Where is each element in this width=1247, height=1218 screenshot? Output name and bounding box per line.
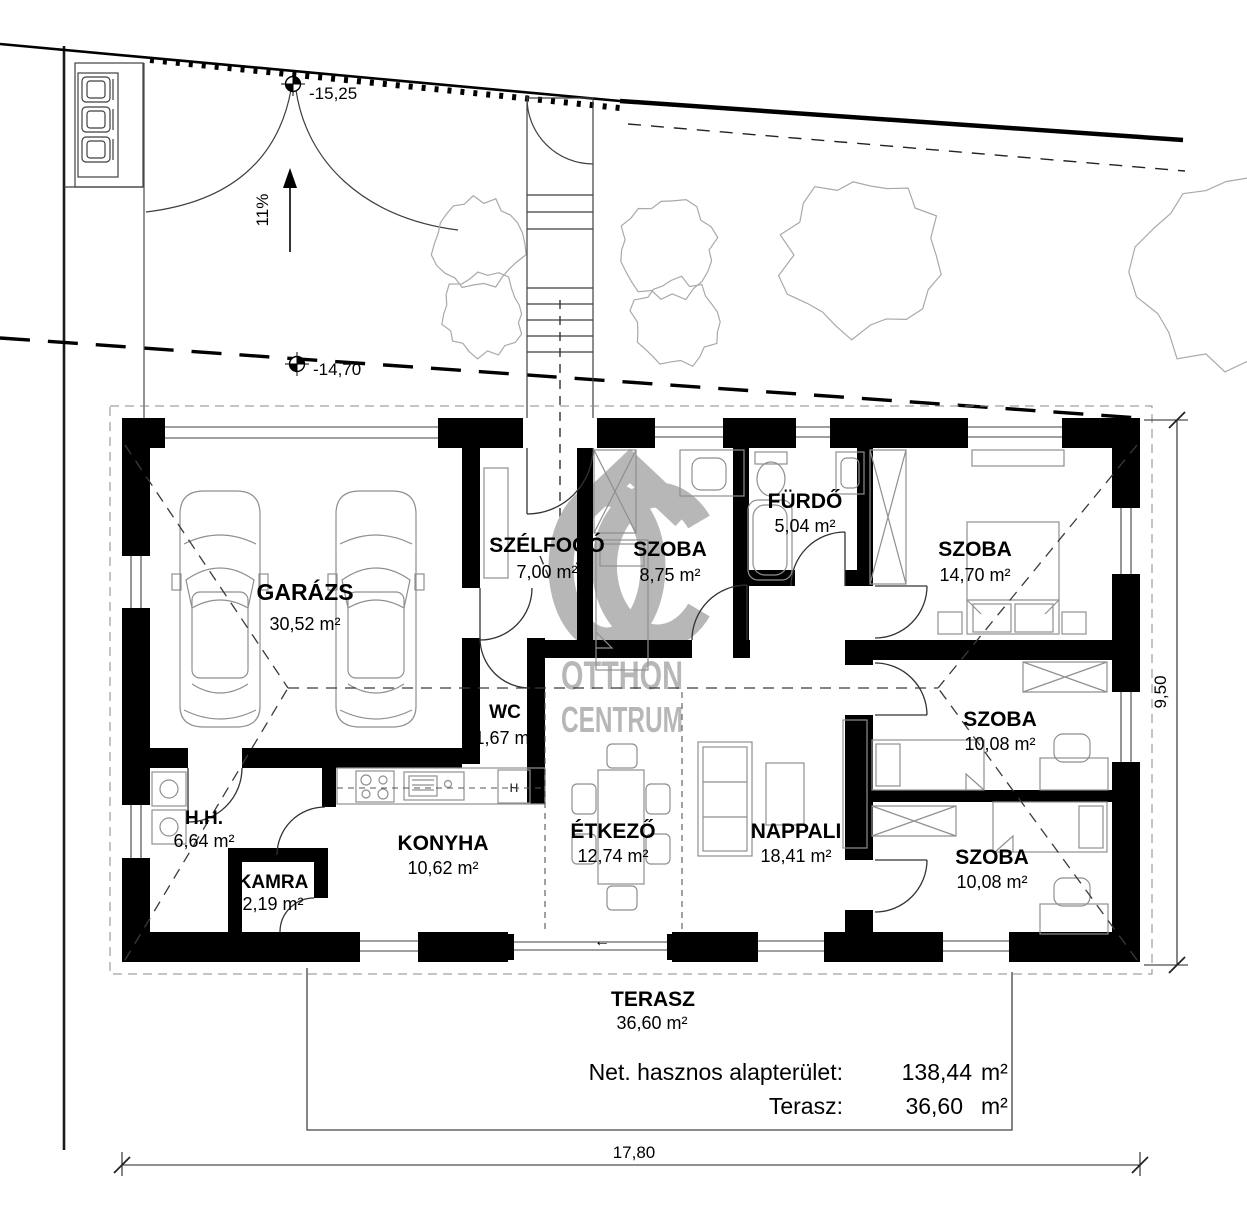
faucet bbox=[445, 781, 452, 788]
sliding-door-jamb bbox=[505, 934, 514, 960]
nightstand bbox=[1062, 612, 1086, 634]
pillow bbox=[973, 604, 1011, 632]
tree-outline bbox=[431, 196, 526, 288]
elevation-marker-top bbox=[281, 72, 305, 96]
washbasin-bowl bbox=[841, 458, 859, 488]
room-area-etkezo: 12,74 m² bbox=[577, 846, 648, 866]
pillow bbox=[876, 744, 900, 786]
summary-block: TERASZ 36,60 m² Net. hasznos alapterület… bbox=[307, 968, 1012, 1130]
room-label-etkezo: ÉTKEZŐ bbox=[570, 820, 655, 843]
elevation-label-top: -15,25 bbox=[309, 84, 357, 103]
slope-label: 11% bbox=[253, 194, 272, 227]
dining-chair bbox=[607, 744, 637, 768]
wardrobe bbox=[870, 450, 906, 584]
sink-basin bbox=[409, 776, 437, 796]
pillow bbox=[1015, 604, 1053, 632]
room-label-garazs: GARÁZS bbox=[256, 578, 353, 605]
bed-corner bbox=[967, 600, 1059, 614]
sofa bbox=[766, 763, 804, 825]
floorplan-drawing: 11% -15,25 -14,70 bbox=[0, 0, 1247, 1218]
room-area-kamra: 2,19 m² bbox=[242, 894, 303, 914]
walkway-steps bbox=[527, 195, 593, 352]
bedroom-middle-door bbox=[875, 663, 927, 715]
chair bbox=[692, 458, 726, 490]
wardrobe bbox=[1023, 662, 1107, 692]
tree-outline bbox=[621, 200, 718, 300]
room-label-szoba-kozep: SZOBA bbox=[963, 708, 1037, 731]
shelf-unit-inner bbox=[703, 747, 747, 851]
dining-chair bbox=[646, 784, 670, 814]
room-area-szelfogo: 7,00 m² bbox=[516, 562, 577, 582]
shelf bbox=[972, 450, 1064, 466]
gate-swing-arc bbox=[527, 98, 593, 164]
bedroom-east-door bbox=[875, 586, 927, 638]
chair bbox=[1054, 878, 1090, 906]
room-area-szoba-keleti: 14,70 m² bbox=[939, 565, 1010, 585]
terrace-door-arrow: ← bbox=[594, 933, 610, 950]
burner bbox=[362, 790, 370, 798]
burner bbox=[361, 775, 371, 785]
watermark-line2: CENTRUM bbox=[561, 699, 683, 740]
summary-row2-value: 36,60 bbox=[905, 1093, 963, 1119]
room-area-furdo: 5,04 m² bbox=[774, 516, 835, 536]
summary-row2-label: Terasz: bbox=[769, 1093, 843, 1119]
room-area-nappali: 18,41 m² bbox=[760, 846, 831, 866]
room-area-garazs: 30,52 m² bbox=[269, 614, 340, 634]
garage-hall-door bbox=[480, 588, 532, 640]
refuse-bins bbox=[64, 63, 143, 187]
bedroom-south-door bbox=[875, 860, 927, 912]
nightstand bbox=[938, 612, 962, 634]
room-area-wc: 1,67 m² bbox=[474, 728, 535, 748]
terrace-label: TERASZ bbox=[611, 988, 695, 1011]
car bbox=[328, 491, 424, 727]
desk bbox=[1040, 758, 1108, 790]
dimension-depth-label: 9,50 bbox=[1151, 675, 1170, 708]
tree-outline bbox=[1129, 178, 1247, 372]
dining-chair bbox=[607, 886, 637, 910]
burner bbox=[379, 776, 387, 784]
bed-single bbox=[993, 802, 1107, 852]
pillow bbox=[1079, 806, 1103, 848]
room-label-szoba-deli: SZOBA bbox=[955, 846, 1029, 869]
summary-row1-label: Net. hasznos alapterület: bbox=[589, 1059, 843, 1085]
room-label-furdo: FÜRDŐ bbox=[768, 490, 843, 513]
sliding-door-jamb bbox=[667, 934, 676, 960]
garden-trees bbox=[431, 178, 1247, 372]
room-label-hh: H.H. bbox=[185, 808, 223, 829]
hall-cabinet bbox=[484, 468, 508, 578]
watermark-line1: OTTHON bbox=[561, 654, 683, 698]
terrace-area: 36,60 m² bbox=[616, 1013, 687, 1033]
room-area-szoba-kozep: 10,08 m² bbox=[964, 734, 1035, 754]
summary-row1-value: 138,44 bbox=[902, 1059, 973, 1085]
summary-row1-unit: m² bbox=[981, 1059, 1008, 1085]
dining-chair bbox=[572, 784, 596, 814]
room-label-kamra: KAMRA bbox=[238, 872, 309, 893]
washing-machine bbox=[152, 772, 186, 806]
desk bbox=[1040, 904, 1108, 934]
room-label-wc: WC bbox=[489, 702, 521, 723]
room-area-konyha: 10,62 m² bbox=[407, 858, 478, 878]
kitchen-door bbox=[277, 807, 325, 855]
wc-door bbox=[480, 638, 530, 688]
floorplan-page: 11% -15,25 -14,70 bbox=[0, 0, 1247, 1218]
bathroom-door bbox=[791, 532, 845, 586]
room-area-hh: 6,64 m² bbox=[173, 831, 234, 851]
room-label-szelfogo: SZÉLFOGÓ bbox=[489, 533, 605, 557]
driveway-flare-right bbox=[296, 90, 458, 230]
room-area-szoba-eszaki: 8,75 m² bbox=[639, 565, 700, 585]
summary-row2-unit: m² bbox=[981, 1093, 1008, 1119]
elevation-label-mid: -14,70 bbox=[313, 360, 361, 379]
tree-outline bbox=[442, 272, 522, 359]
wardrobe bbox=[872, 806, 956, 836]
washing-machine-door bbox=[160, 780, 178, 798]
tree-outline bbox=[779, 182, 942, 340]
room-label-szoba-keleti: SZOBA bbox=[938, 538, 1012, 561]
fence-hatching bbox=[150, 60, 620, 108]
room-area-szoba-deli: 10,08 m² bbox=[956, 872, 1027, 892]
tree-outline bbox=[630, 276, 720, 366]
blanket-fold bbox=[966, 774, 984, 790]
stove bbox=[356, 771, 394, 802]
room-label-szoba-eszaki: SZOBA bbox=[633, 538, 707, 561]
fence-line-right bbox=[620, 101, 1183, 140]
slope-arrow-head bbox=[283, 168, 297, 188]
shelf-unit bbox=[698, 742, 752, 856]
elevation-marker-mid bbox=[285, 352, 309, 376]
car bbox=[172, 491, 268, 727]
dimension-width-label: 17,80 bbox=[613, 1143, 656, 1162]
room-label-konyha: KONYHA bbox=[397, 832, 488, 855]
burner bbox=[378, 789, 388, 799]
room-label-nappali: NAPPALI bbox=[751, 820, 842, 843]
setback-dashed-line bbox=[628, 124, 1185, 171]
